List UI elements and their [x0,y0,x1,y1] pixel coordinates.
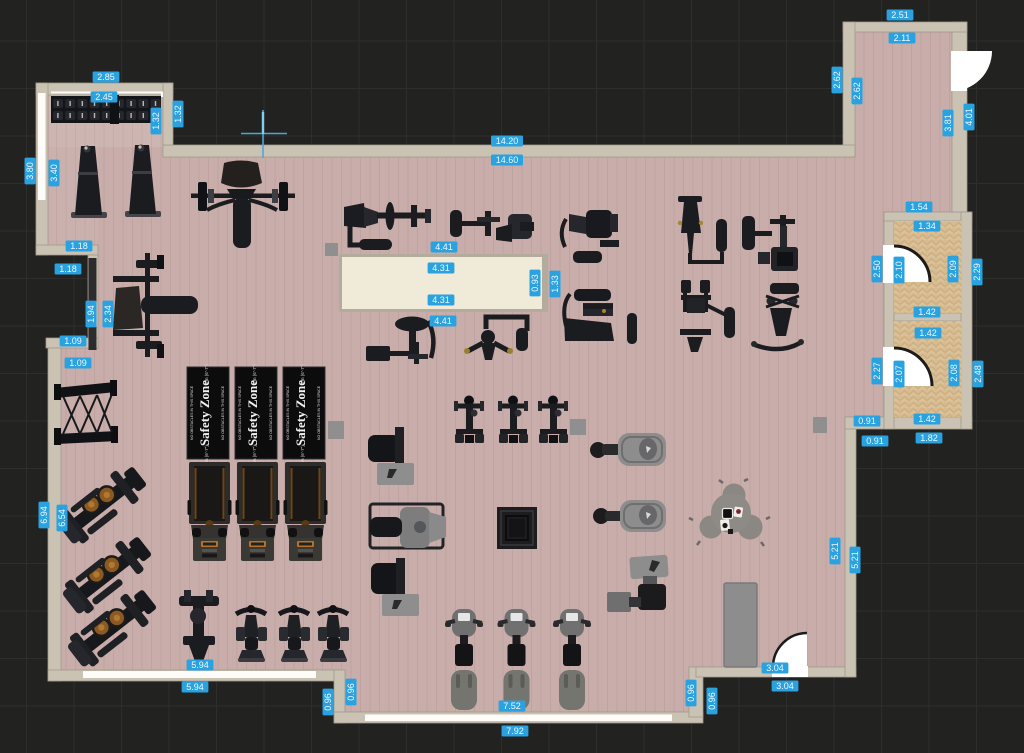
svg-text:7.92: 7.92 [506,726,524,736]
svg-text:1.94: 1.94 [86,305,96,323]
svg-text:6.54: 6.54 [57,509,67,527]
svg-text:3.04: 3.04 [776,681,794,691]
svg-text:0.96: 0.96 [346,683,356,701]
svg-text:2.08: 2.08 [949,364,959,382]
svg-text:1.42: 1.42 [918,414,936,424]
svg-text:2.10: 2.10 [894,261,904,279]
svg-text:0.96: 0.96 [686,684,696,702]
svg-text:3.40: 3.40 [49,164,59,182]
svg-text:2.85: 2.85 [97,72,115,82]
svg-text:1.42: 1.42 [919,328,937,338]
svg-text:2.29: 2.29 [972,263,982,281]
svg-text:2m (6'-7"): 2m (6'-7") [204,445,209,465]
svg-text:2.51: 2.51 [891,10,909,20]
svg-text:2.09: 2.09 [948,260,958,278]
svg-text:NO OBSTACLES IN THIS SPACE: NO OBSTACLES IN THIS SPACE [190,385,194,440]
svg-text:2.48: 2.48 [973,365,983,383]
svg-text:4.41: 4.41 [435,242,453,252]
svg-text:2.34: 2.34 [103,305,113,323]
svg-text:5.21: 5.21 [850,551,860,569]
svg-text:3.04: 3.04 [766,663,784,673]
svg-text:7.52: 7.52 [503,701,521,711]
svg-text:NO OBSTACLES IN THIS SPACE: NO OBSTACLES IN THIS SPACE [221,385,225,440]
svg-text:3.81: 3.81 [943,114,953,132]
svg-text:0.91: 0.91 [866,436,884,446]
svg-text:0.96: 0.96 [323,693,333,711]
svg-text:2.27: 2.27 [872,362,882,380]
svg-text:4.01: 4.01 [964,108,974,126]
svg-text:14.60: 14.60 [496,155,519,165]
svg-text:0.93: 0.93 [530,274,540,292]
svg-text:2.62: 2.62 [832,71,842,89]
svg-text:1.18: 1.18 [70,241,88,251]
svg-text:NO OBSTACLES IN THIS SPACE: NO OBSTACLES IN THIS SPACE [286,385,290,440]
svg-text:1.54: 1.54 [910,202,928,212]
svg-text:2.62: 2.62 [852,82,862,100]
svg-text:4.41: 4.41 [434,316,452,326]
svg-text:2.11: 2.11 [894,33,911,43]
svg-text:NO OBSTACLES IN THIS SPACE: NO OBSTACLES IN THIS SPACE [238,385,242,440]
svg-text:4.31: 4.31 [432,263,450,273]
svg-text:6.94: 6.94 [39,506,49,524]
svg-text:2m (6'-7"): 2m (6'-7") [252,445,257,465]
svg-text:14.20: 14.20 [496,136,519,146]
svg-text:1.32: 1.32 [151,112,161,130]
svg-text:2.45: 2.45 [95,92,113,102]
svg-text:4.31: 4.31 [432,295,450,305]
svg-text:1.34: 1.34 [918,221,936,231]
svg-text:3.80: 3.80 [25,162,35,180]
svg-text:1.33: 1.33 [550,275,560,293]
svg-text:1.09: 1.09 [69,358,87,368]
svg-text:2m (6'-7"): 2m (6'-7") [252,364,257,384]
svg-text:2m (6'-7"): 2m (6'-7") [204,364,209,384]
svg-text:1.42: 1.42 [918,307,936,317]
svg-text:0.96: 0.96 [707,692,717,710]
svg-text:0.91: 0.91 [858,416,876,426]
svg-text:2.07: 2.07 [894,365,904,383]
svg-text:1.82: 1.82 [920,433,938,443]
svg-text:1.32: 1.32 [173,105,183,123]
svg-text:Safety Zone: Safety Zone [197,380,212,446]
svg-text:Safety Zone: Safety Zone [245,380,260,446]
svg-text:5.21: 5.21 [830,542,840,560]
svg-text:NO OBSTACLES IN THIS SPACE: NO OBSTACLES IN THIS SPACE [269,385,273,440]
svg-text:5.94: 5.94 [186,682,204,692]
svg-text:Safety Zone: Safety Zone [293,380,308,446]
svg-text:1.09: 1.09 [64,336,82,346]
svg-text:NO OBSTACLES IN THIS SPACE: NO OBSTACLES IN THIS SPACE [317,385,321,440]
svg-text:1.18: 1.18 [59,264,77,274]
svg-text:2m (6'-7"): 2m (6'-7") [300,364,305,384]
svg-text:2.50: 2.50 [872,260,882,278]
svg-text:2m (6'-7"): 2m (6'-7") [300,445,305,465]
svg-text:5.94: 5.94 [191,660,209,670]
